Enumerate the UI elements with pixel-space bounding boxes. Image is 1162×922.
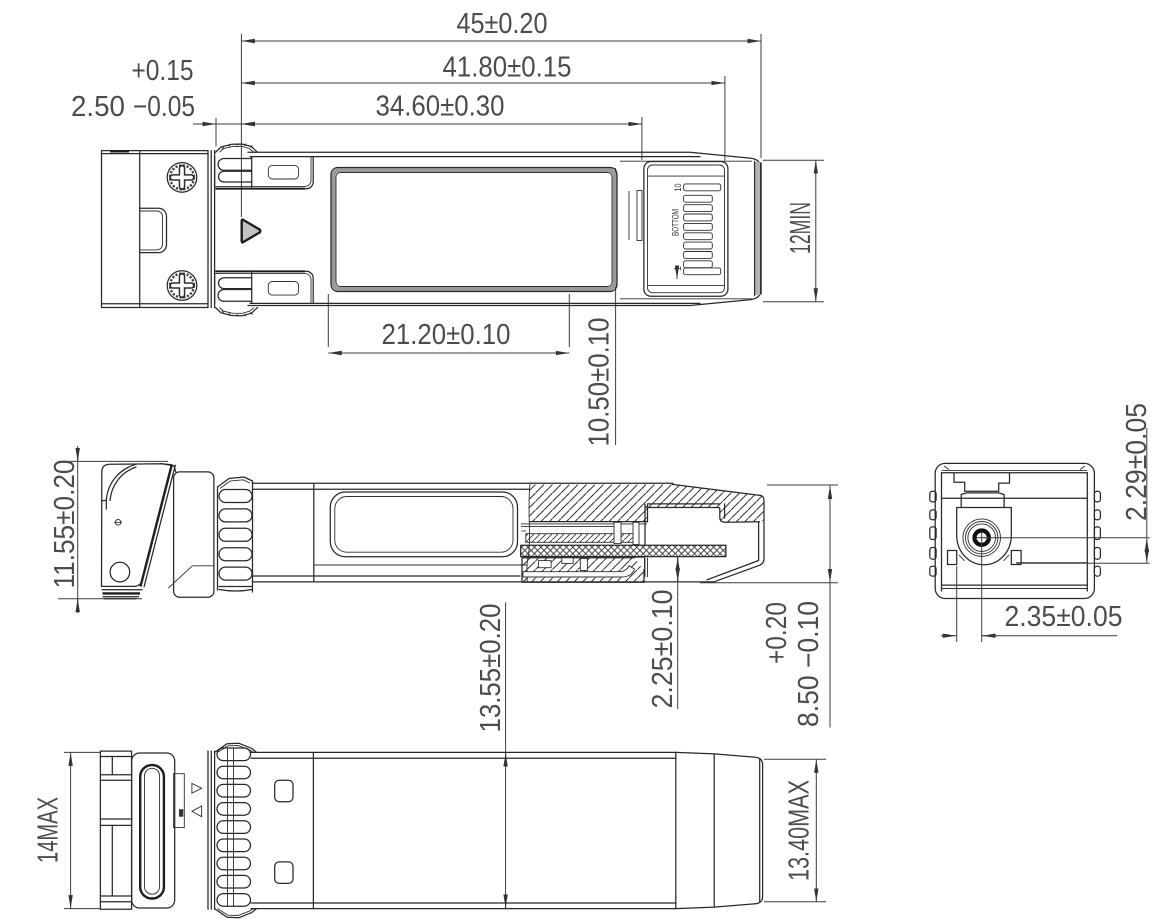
svg-text:45±0.20: 45±0.20: [457, 8, 548, 40]
svg-text:10.50±0.10: 10.50±0.10: [584, 318, 616, 447]
svg-text:−0.05: −0.05: [133, 91, 195, 123]
svg-text:34.60±0.30: 34.60±0.30: [376, 91, 505, 123]
svg-text:2.29±0.05: 2.29±0.05: [1121, 403, 1153, 521]
svg-text:13.40MAX: 13.40MAX: [784, 780, 816, 881]
svg-text:12MIN: 12MIN: [785, 202, 817, 254]
svg-text:+0.20: +0.20: [761, 602, 793, 664]
svg-text:21.20±0.10: 21.20±0.10: [382, 319, 511, 351]
svg-text:+0.15: +0.15: [132, 55, 194, 87]
svg-text:2.50: 2.50: [71, 91, 125, 123]
svg-text:14MAX: 14MAX: [33, 797, 65, 863]
svg-text:2.25±0.10: 2.25±0.10: [647, 590, 679, 709]
svg-text:10: 10: [673, 184, 683, 192]
svg-text:13.55±0.20: 13.55±0.20: [475, 604, 507, 733]
svg-text:8.50 −0.10: 8.50 −0.10: [793, 601, 825, 727]
svg-text:BOTTOM: BOTTOM: [671, 209, 681, 236]
svg-text:1: 1: [673, 266, 683, 271]
svg-text:11.55±0.20: 11.55±0.20: [49, 460, 81, 589]
svg-text:2.35±0.05: 2.35±0.05: [1005, 601, 1123, 633]
svg-text:41.80±0.15: 41.80±0.15: [443, 52, 572, 84]
